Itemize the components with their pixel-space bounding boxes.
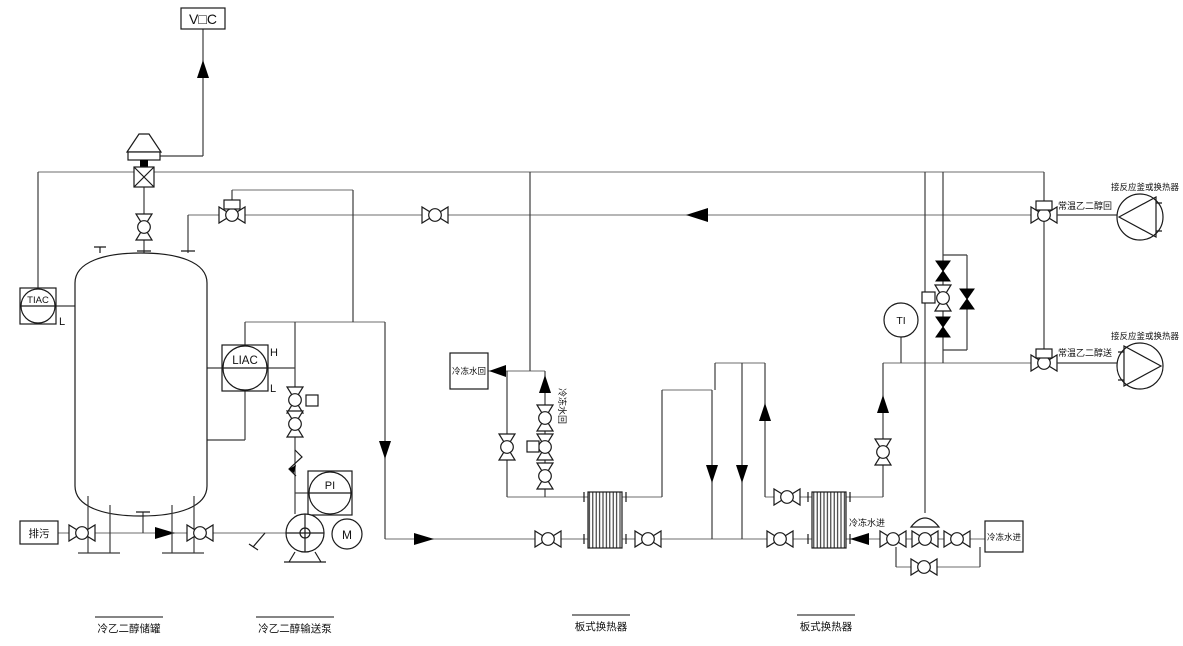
control-valve-icon: [935, 285, 951, 311]
breather-valve-icon: [127, 134, 161, 167]
tank-label: 冷乙二醇储罐: [98, 622, 161, 635]
ball-valve-icon: [537, 463, 553, 489]
pump-motor: M: [332, 519, 362, 549]
chilled-supply-line-label: 冷冻水进: [849, 517, 885, 528]
ball-valve-icon: [774, 489, 800, 505]
drain-box: 排污: [20, 521, 58, 544]
ball-valve-icon: [537, 405, 553, 431]
ball-valve-icon: [69, 525, 95, 541]
plate-hx-2: [808, 492, 850, 548]
ball-valve-icon: [422, 207, 448, 223]
ball-valve-icon: [136, 214, 152, 240]
pi-tag: PI: [325, 480, 335, 492]
flow-arrows: [155, 60, 889, 545]
ball-valve-icon: [535, 531, 561, 547]
dest-top-label: 接反应釜或换热器: [1111, 182, 1180, 192]
instrument-liac: LIAC H L: [222, 345, 278, 395]
ball-valve-icon: [875, 439, 891, 465]
gate-valve-icon: [960, 289, 974, 309]
gate-valve-icon: [936, 261, 950, 281]
ball-valve-icon: [499, 434, 515, 460]
ball-valve-icon: [944, 531, 970, 547]
drain-label: 排污: [29, 527, 50, 540]
ball-valve-icon: [187, 525, 213, 541]
dest-equipment-bottom: 接反应釜或换热器: [1057, 331, 1179, 389]
tiac-low: L: [59, 316, 65, 328]
liac-tag: LIAC: [232, 355, 258, 367]
instrument-ti: TI: [884, 303, 918, 337]
dest-bottom-label: 接反应釜或换热器: [1111, 331, 1180, 341]
dest-equipment-top: 接反应釜或换热器: [1057, 182, 1179, 240]
chilled-supply-box: 冷冻水进: [985, 521, 1023, 552]
hx2-label: 板式换热器: [800, 620, 853, 633]
ti-tag: TI: [896, 315, 905, 327]
pid-diagram: V□C TIAC L LIAC H L PI TI M: [0, 0, 1183, 646]
ball-valve-icon: [635, 531, 661, 547]
glycol-return-line-label: 常温乙二醇回: [1058, 200, 1112, 211]
liac-low: L: [270, 383, 276, 395]
pid-svg: V□C TIAC L LIAC H L PI TI M: [0, 0, 1183, 646]
ball-valve-icon: [911, 559, 937, 575]
pump-label: 冷乙二醇输送泵: [258, 622, 332, 635]
gate-valve-icon: [936, 317, 950, 337]
pipes-horizontal: [38, 172, 1044, 567]
chilled-return-box-label: 冷冻水回: [452, 366, 486, 376]
voc-vent-box: V□C: [181, 8, 225, 29]
diaphragm-valve-icon: [912, 531, 938, 547]
ball-valve-icon: [767, 531, 793, 547]
tiac-tag: TIAC: [27, 295, 49, 306]
motor-tag: M: [342, 528, 352, 542]
liac-high: H: [270, 347, 278, 359]
ball-valve-icon: [287, 411, 303, 437]
chilled-return-box: 冷冻水回: [450, 353, 488, 389]
control-valve-icon: [287, 387, 303, 413]
hx1-label: 板式换热器: [575, 620, 628, 633]
chilled-return-line-label: 冷冻水回: [557, 388, 568, 424]
storage-tank: [75, 247, 207, 553]
instrument-tiac: TIAC L: [20, 288, 65, 328]
instrument-pi: PI: [308, 471, 352, 515]
equipment-labels: 冷乙二醇储罐 冷乙二醇输送泵 板式换热器 板式换热器: [95, 615, 855, 635]
chilled-supply-box-label: 冷冻水进: [987, 532, 1022, 542]
flame-arrester-icon: [134, 167, 154, 187]
voc-label: V□C: [189, 11, 217, 27]
plate-hx-1: [584, 492, 626, 548]
glycol-supply-line-label: 常温乙二醇送: [1058, 347, 1112, 358]
ball-valve-icon: [880, 531, 906, 547]
